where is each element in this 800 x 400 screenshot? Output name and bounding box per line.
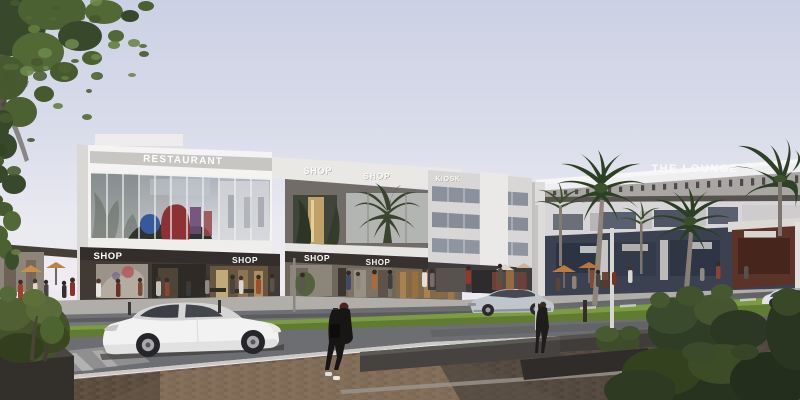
svg-text:THE LOUNGE: THE LOUNGE xyxy=(651,163,738,175)
svg-text:SHOP: SHOP xyxy=(232,255,258,265)
svg-text:SHOP: SHOP xyxy=(304,253,330,263)
svg-text:SHOP: SHOP xyxy=(363,171,390,181)
svg-text:SHOP: SHOP xyxy=(94,251,123,262)
svg-text:SHOP: SHOP xyxy=(304,166,333,176)
svg-text:KIOSK: KIOSK xyxy=(435,176,460,183)
svg-text:SHOP: SHOP xyxy=(366,258,391,267)
